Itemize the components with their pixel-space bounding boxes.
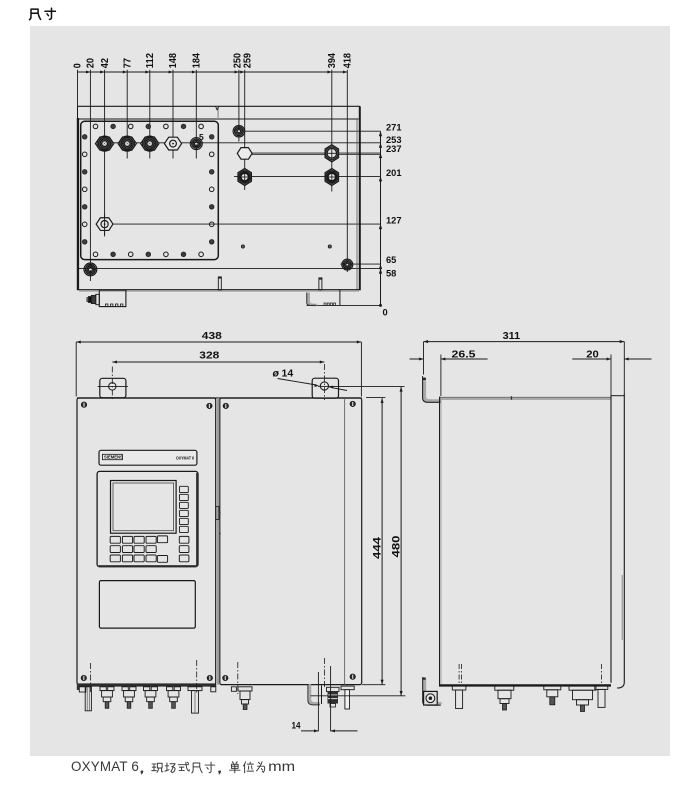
svg-text:418: 418 (343, 53, 354, 68)
svg-text:184: 184 (192, 53, 203, 68)
svg-text:259: 259 (243, 53, 254, 68)
svg-text:20: 20 (586, 348, 599, 360)
svg-text:127: 127 (386, 215, 402, 225)
svg-text:77: 77 (122, 58, 133, 68)
svg-text:SIEMENS: SIEMENS (104, 455, 123, 460)
svg-text:OXYMAT 6: OXYMAT 6 (176, 456, 194, 461)
svg-text:311: 311 (503, 330, 521, 342)
svg-text:201: 201 (386, 168, 402, 178)
svg-text:0: 0 (73, 63, 84, 68)
svg-text:ø: ø (273, 368, 280, 380)
svg-text:14: 14 (282, 367, 294, 379)
svg-text:480: 480 (391, 536, 403, 558)
svg-text:328: 328 (199, 350, 219, 362)
svg-text:26.5: 26.5 (452, 348, 476, 360)
svg-text:mm: mm (268, 759, 295, 774)
svg-text:271: 271 (386, 123, 402, 133)
svg-text:5: 5 (199, 132, 204, 142)
svg-text:0: 0 (383, 308, 388, 318)
svg-text:148: 148 (168, 53, 179, 68)
svg-text:65: 65 (386, 255, 396, 265)
svg-text:20: 20 (86, 58, 97, 68)
svg-text:OXYMAT 6: OXYMAT 6 (71, 759, 139, 774)
svg-text:14: 14 (292, 721, 302, 732)
svg-text:42: 42 (100, 58, 111, 68)
svg-text:438: 438 (202, 330, 222, 342)
svg-text:444: 444 (372, 536, 384, 559)
svg-text:394: 394 (327, 53, 338, 68)
svg-text:237: 237 (386, 144, 402, 154)
svg-text:58: 58 (386, 268, 396, 278)
svg-text:112: 112 (145, 53, 156, 69)
